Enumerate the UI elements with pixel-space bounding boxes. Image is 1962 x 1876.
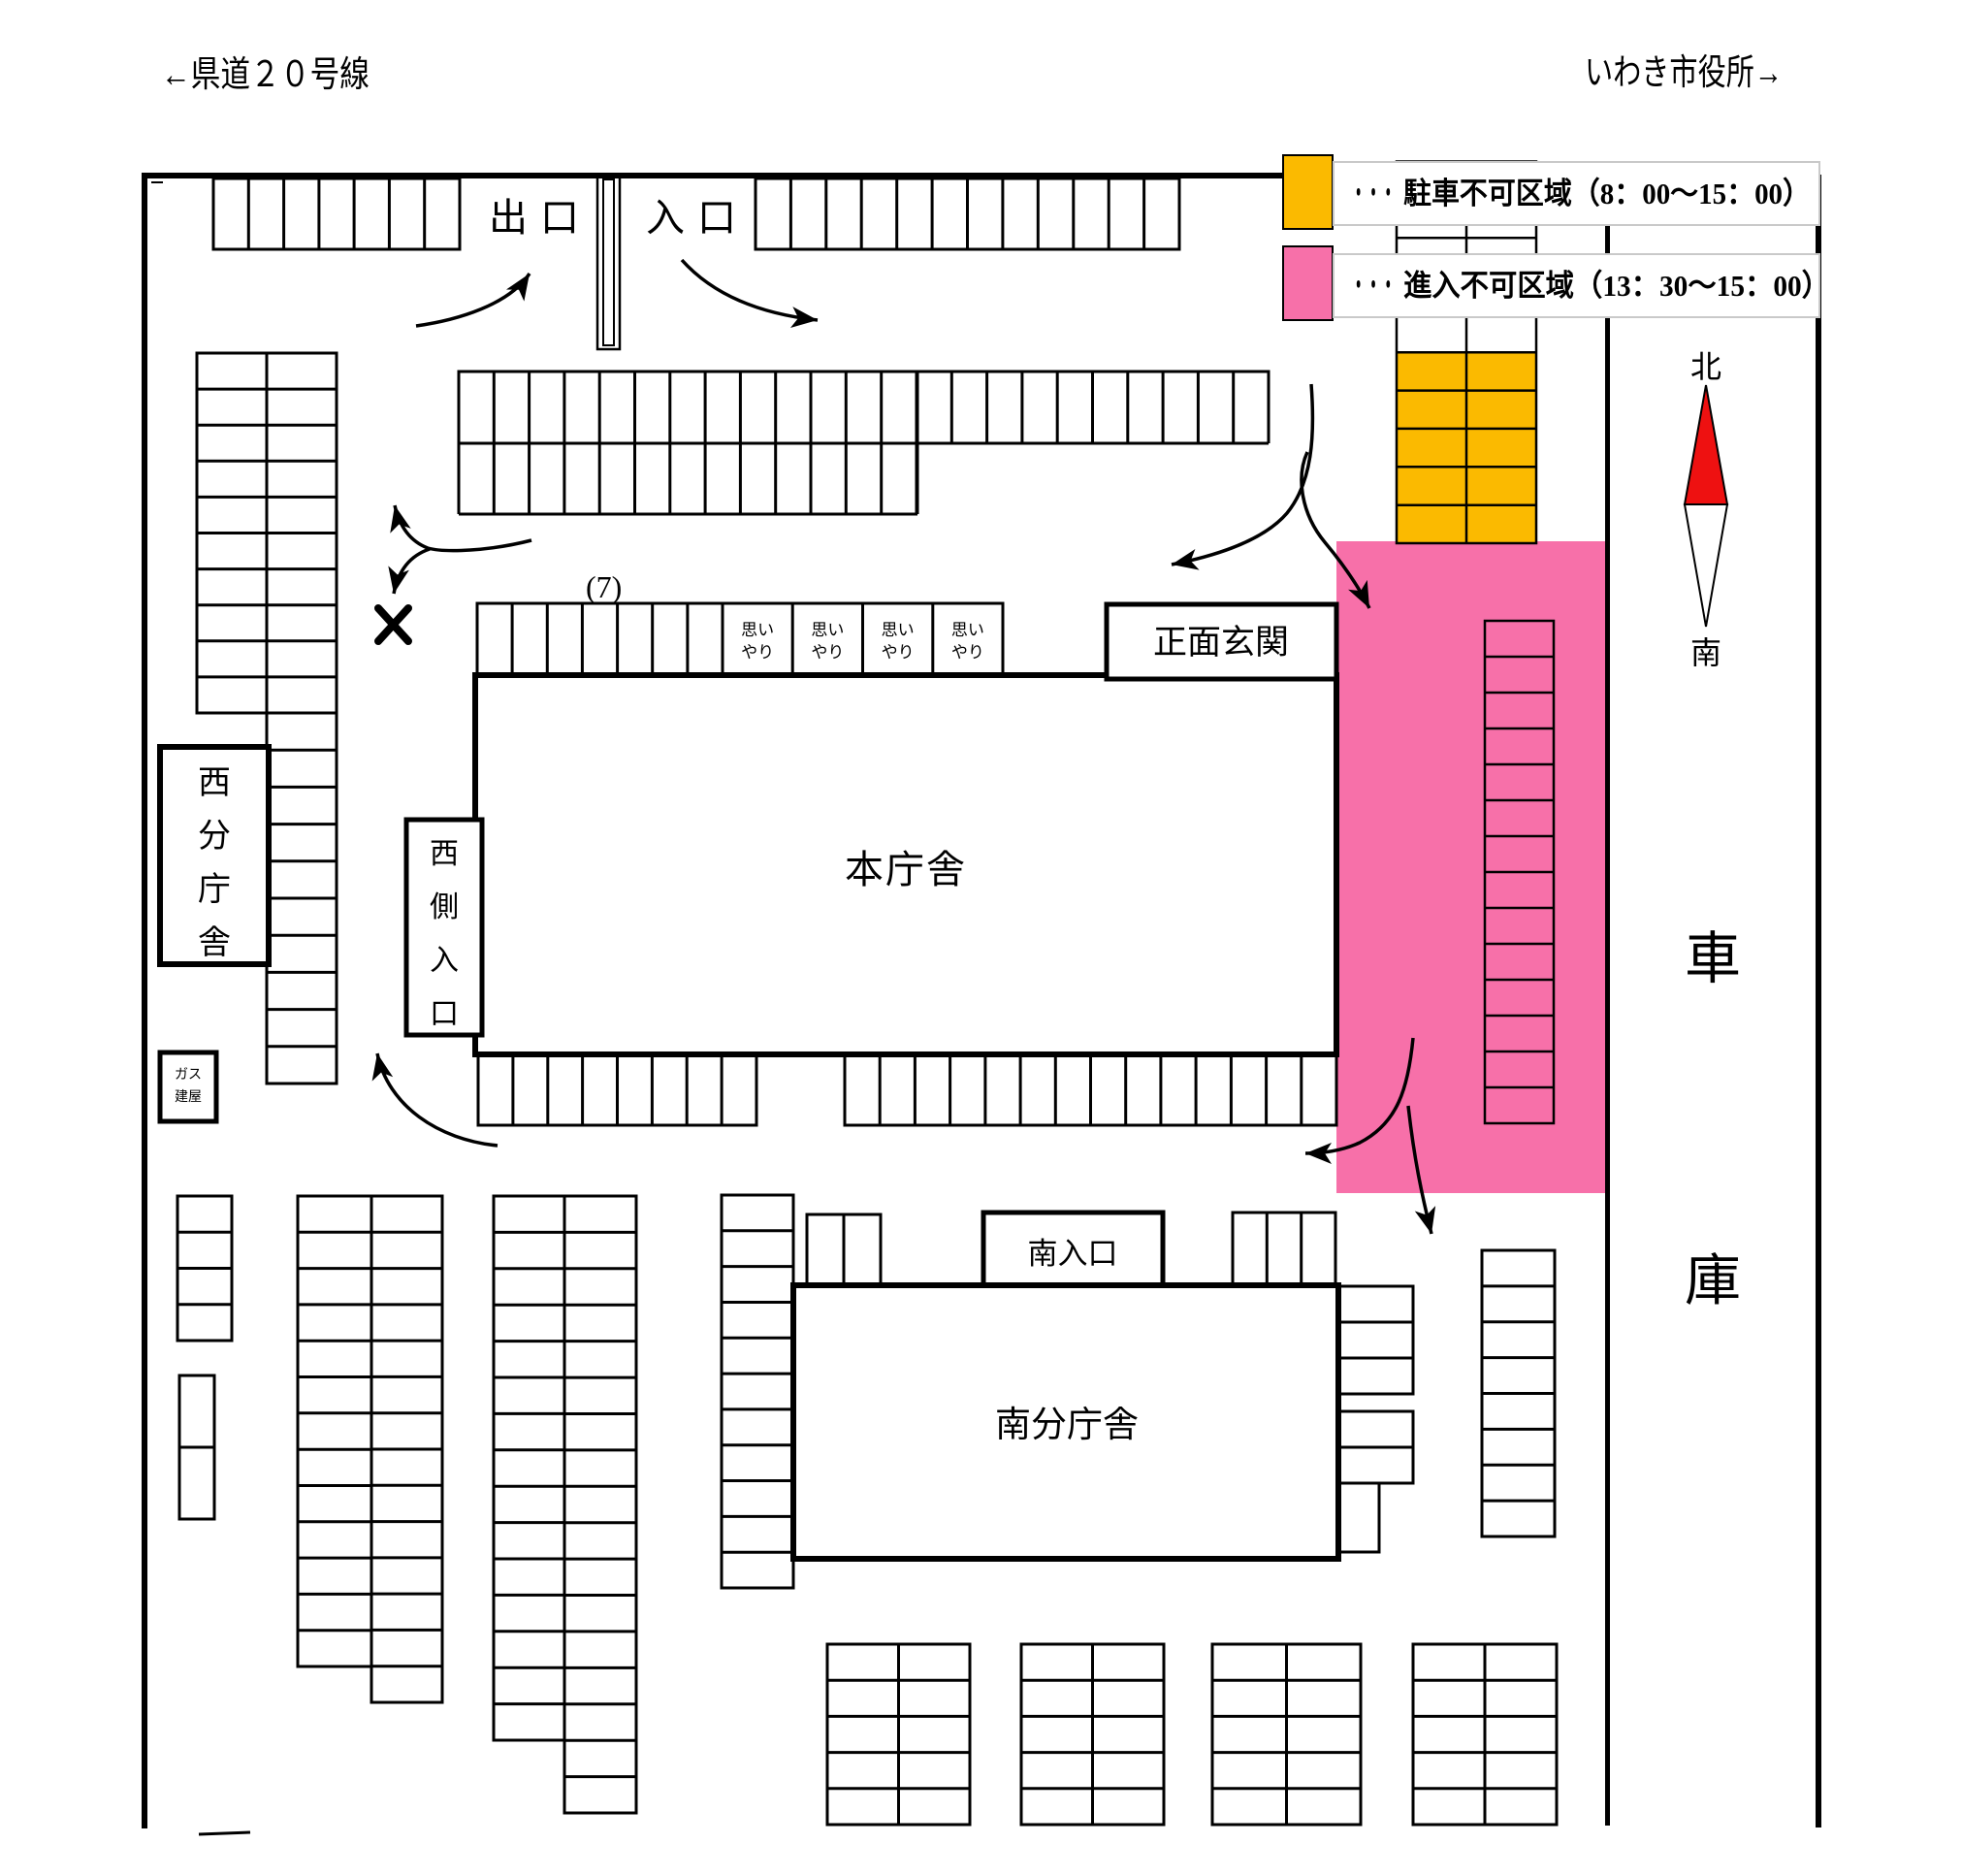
svg-text:進入不可区域（13：30～15：00）: 進入不可区域（13：30～15：00） bbox=[1403, 269, 1830, 303]
svg-text:西: 西 bbox=[430, 838, 459, 870]
svg-text:思い: 思い bbox=[741, 621, 774, 639]
svg-text:思い: 思い bbox=[811, 621, 844, 639]
svg-text:出口: 出口 bbox=[489, 196, 592, 240]
svg-text:庁: 庁 bbox=[198, 871, 231, 908]
svg-text:口: 口 bbox=[430, 998, 459, 1030]
svg-text:北: 北 bbox=[1690, 349, 1721, 384]
svg-text:思い: 思い bbox=[951, 621, 984, 639]
svg-text:正面玄関: 正面玄関 bbox=[1153, 624, 1289, 662]
svg-text:・・・: ・・・ bbox=[1351, 177, 1396, 210]
svg-text:入口: 入口 bbox=[646, 196, 749, 240]
svg-text:南分庁舎: 南分庁舎 bbox=[995, 1406, 1139, 1445]
svg-text:入: 入 bbox=[430, 945, 459, 977]
svg-text:建屋: 建屋 bbox=[175, 1089, 202, 1105]
svg-text:南: 南 bbox=[1690, 635, 1721, 670]
svg-text:やり: やり bbox=[882, 643, 915, 662]
svg-text:本庁舎: 本庁舎 bbox=[845, 848, 967, 891]
svg-text:思い: 思い bbox=[882, 621, 915, 639]
svg-text:いわき市役所→: いわき市役所→ bbox=[1585, 52, 1783, 93]
svg-text:←県道２０号線: ←県道２０号線 bbox=[161, 54, 370, 95]
svg-text:(7): (7) bbox=[586, 569, 622, 604]
svg-text:やり: やり bbox=[811, 643, 844, 662]
svg-text:・・・: ・・・ bbox=[1351, 269, 1396, 303]
svg-text:車: 車 bbox=[1685, 927, 1741, 990]
svg-text:駐車不可区域（8：00～15：00）: 駐車不可区域（8：00～15：00） bbox=[1403, 177, 1811, 210]
svg-text:ガス: ガス bbox=[175, 1067, 202, 1083]
svg-text:舎: 舎 bbox=[198, 925, 231, 961]
svg-text:庫: 庫 bbox=[1685, 1249, 1741, 1312]
svg-text:南入口: 南入口 bbox=[1028, 1237, 1118, 1271]
svg-text:やり: やり bbox=[741, 643, 774, 662]
svg-text:側: 側 bbox=[430, 891, 459, 923]
svg-text:やり: やり bbox=[951, 643, 984, 662]
svg-text:分: 分 bbox=[198, 819, 231, 855]
svg-text:西: 西 bbox=[198, 765, 231, 801]
